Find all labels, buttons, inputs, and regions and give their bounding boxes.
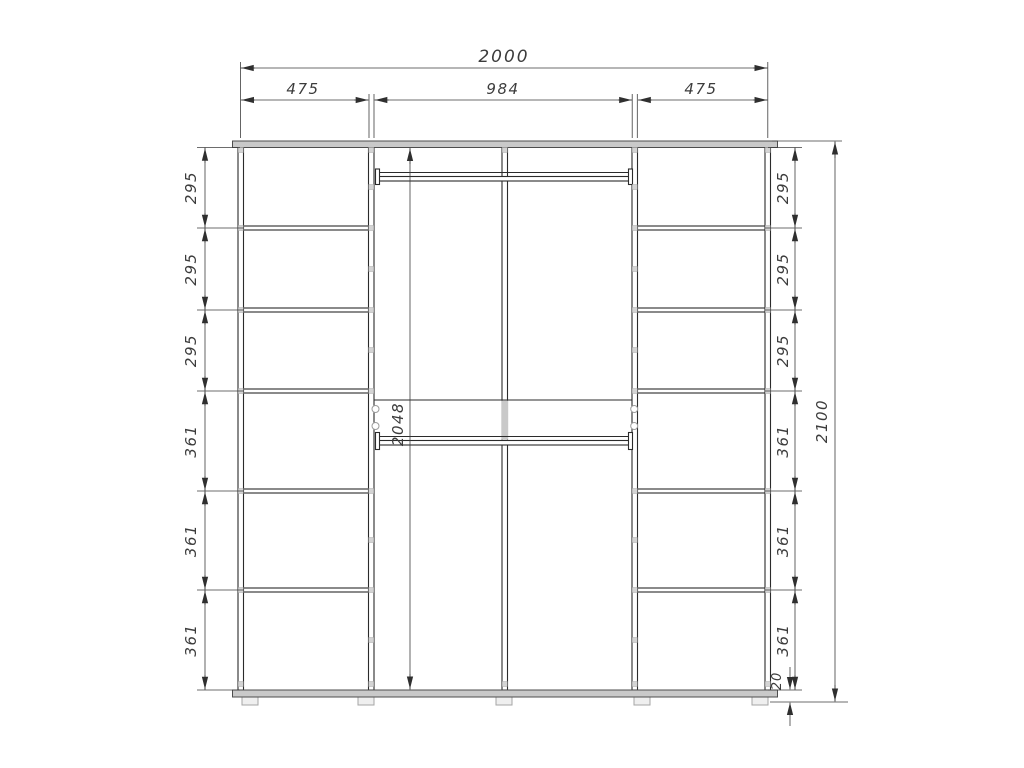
dim-label-left-6: 361 <box>182 623 200 656</box>
drawing-canvas: 2000 475 984 475 295 295 295 361 361 361… <box>0 0 1024 768</box>
rail-bracket-left <box>376 169 380 185</box>
dim-label-right-3: 295 <box>774 334 792 367</box>
dim-label-total-width: 2000 <box>478 47 529 67</box>
dim-label-left-4: 361 <box>182 424 200 457</box>
dim-label-left-5: 361 <box>182 524 200 557</box>
dim-label-base-height: 20 <box>770 672 785 691</box>
dim-label-left-section-width: 475 <box>286 80 319 98</box>
dim-label-total-height: 2100 <box>813 399 831 443</box>
dim-label-right-2: 295 <box>774 252 792 285</box>
rail-bracket-right <box>629 169 633 185</box>
dim-label-left-2: 295 <box>182 252 200 285</box>
dim-label-left-1: 295 <box>182 171 200 204</box>
rail-bracket-right <box>629 433 633 450</box>
dim-label-right-1: 295 <box>774 171 792 204</box>
dim-label-right-6: 361 <box>774 623 792 656</box>
dim-label-right-section-width: 475 <box>684 80 717 98</box>
bottom-panel <box>233 690 778 697</box>
divider-gray-segment <box>502 401 509 440</box>
dim-label-left-3: 295 <box>182 334 200 367</box>
background <box>0 0 1024 768</box>
dim-label-right-4: 361 <box>774 424 792 457</box>
wardrobe-technical-drawing: 2000 475 984 475 295 295 295 361 361 361… <box>0 0 1024 768</box>
rail-bracket-left <box>376 433 380 450</box>
dim-label-middle-section-width: 984 <box>486 80 519 98</box>
top-panel <box>233 141 778 148</box>
dim-label-right-5: 361 <box>774 524 792 557</box>
dim-label-interior-height: 2048 <box>389 402 407 446</box>
